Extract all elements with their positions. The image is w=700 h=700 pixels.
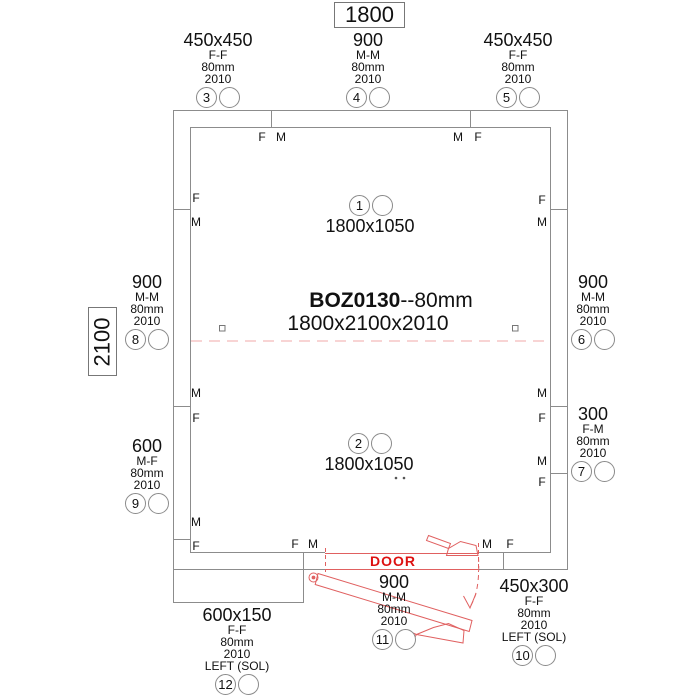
joint-letter: F	[474, 131, 481, 143]
panel-number-circle: 5	[496, 87, 517, 108]
floor-panel-outline	[174, 570, 304, 603]
joint-letter: M	[191, 216, 201, 228]
joint-letter: F	[538, 412, 545, 424]
joint-letter: M	[537, 455, 547, 467]
panel-height: 2010	[92, 315, 202, 327]
marker-dot	[395, 477, 398, 480]
panel-number-circle: 4	[346, 87, 367, 108]
blank-circle	[369, 87, 390, 108]
panel-size: 300	[538, 405, 648, 423]
joint-letter: F	[291, 538, 298, 550]
joint-letter: F	[258, 131, 265, 143]
panel-size: 900	[92, 273, 202, 291]
panel-height: 2010	[313, 73, 423, 85]
panel-label-12: 600x150 F-F 80mm 2010 LEFT (SOL) 12	[182, 606, 292, 695]
model-thickness-suffix: --80mm	[400, 289, 472, 312]
panel-height: 2010	[538, 447, 648, 459]
panel-size: 450x300	[479, 577, 589, 595]
panel-number-circle: 12	[215, 674, 236, 695]
panel-size: 450x450	[463, 31, 573, 49]
model-title: BOZ0130--80mm	[309, 290, 472, 311]
marker-dot	[403, 477, 406, 480]
outer-wall-outline	[174, 111, 568, 570]
joint-letter: M	[191, 516, 201, 528]
model-code: BOZ0130	[309, 289, 400, 312]
panel-height: 2010	[92, 479, 202, 491]
panel-label-7: 300 F-M 80mm 2010 7	[538, 405, 648, 482]
blank-circle	[395, 629, 416, 650]
panel-label-3: 450x450 F-F 80mm 2010 3	[163, 31, 273, 108]
panel-size: 900	[313, 31, 423, 49]
panel-number-circle: 2	[348, 433, 369, 454]
ceiling-panel-2-size: 1800x1050	[324, 455, 413, 473]
panel-height: 2010	[463, 73, 573, 85]
panel-label-4: 900 M-M 80mm 2010 4	[313, 31, 423, 108]
door-hinge-pin	[312, 576, 315, 579]
joint-letter: F	[192, 192, 199, 204]
panel-size: 600x150	[182, 606, 292, 624]
ceiling-panel-1-circles: 1	[349, 195, 393, 216]
panel-size: 900	[339, 573, 449, 591]
door-swing-arrowhead	[464, 594, 477, 609]
panel-number-circle: 6	[571, 329, 592, 350]
blank-circle	[219, 87, 240, 108]
ceiling-panel-1-size: 1800x1050	[325, 217, 414, 235]
joint-letter: M	[537, 387, 547, 399]
panel-joint-ticks	[174, 111, 568, 570]
overall-width-dimension: 1800	[334, 2, 405, 28]
panel-number-circle: 7	[571, 461, 592, 482]
joint-letter: M	[191, 387, 201, 399]
blank-circle	[535, 645, 556, 666]
panel-number-circle: 10	[512, 645, 533, 666]
panel-number-circle: 11	[372, 629, 393, 650]
panel-label-8: 900 M-M 80mm 2010 8	[92, 273, 202, 350]
joint-letter: F	[538, 476, 545, 488]
blank-circle	[148, 493, 169, 514]
panel-height: 2010	[163, 73, 273, 85]
box-dimensions-text: 1800x2100x2010	[287, 313, 448, 334]
panel-number-circle: 8	[125, 329, 146, 350]
blank-circle	[371, 433, 392, 454]
panel-label-10: 450x300 F-F 80mm 2010 LEFT (SOL) 10	[479, 577, 589, 666]
joint-letter: M	[453, 131, 463, 143]
panel-number-circle: 3	[196, 87, 217, 108]
joint-marker-square-right	[513, 326, 519, 332]
panel-height: 2010	[538, 315, 648, 327]
coldroom-plan-drawing: 1800 2100 BOZ0130--80mm 1800x2100x2010 1…	[0, 0, 700, 700]
blank-circle	[238, 674, 259, 695]
panel-label-11: 900 M-M 80mm 2010 11	[339, 573, 449, 650]
joint-letter: M	[308, 538, 318, 550]
blank-circle	[594, 329, 615, 350]
blank-circle	[372, 195, 393, 216]
blank-circle	[148, 329, 169, 350]
joint-letter: M	[482, 538, 492, 550]
panel-size: 900	[538, 273, 648, 291]
panel-side-note: LEFT (SOL)	[182, 660, 292, 672]
joint-letter: M	[276, 131, 286, 143]
panel-size: 450x450	[163, 31, 273, 49]
panel-number-circle: 1	[349, 195, 370, 216]
door-label: DOOR	[370, 555, 416, 567]
panel-label-6: 900 M-M 80mm 2010 6	[538, 273, 648, 350]
panel-label-5: 450x450 F-F 80mm 2010 5	[463, 31, 573, 108]
joint-letter: F	[506, 538, 513, 550]
blank-circle	[594, 461, 615, 482]
panel-label-9: 600 M-F 80mm 2010 9	[92, 437, 202, 514]
joint-letter: F	[192, 540, 199, 552]
joint-letter: F	[192, 412, 199, 424]
joint-letter: M	[537, 216, 547, 228]
panel-number-circle: 9	[125, 493, 146, 514]
joint-marker-square-left	[220, 326, 226, 332]
ceiling-panel-2-circles: 2	[348, 433, 392, 454]
panel-size: 600	[92, 437, 202, 455]
blank-circle	[519, 87, 540, 108]
door-handle-inside-lever	[427, 536, 451, 549]
overall-width-value: 1800	[345, 2, 394, 28]
panel-height: 2010	[339, 615, 449, 627]
panel-side-note: LEFT (SOL)	[479, 631, 589, 643]
inner-wall-outline	[191, 128, 551, 553]
joint-letter: F	[538, 194, 545, 206]
